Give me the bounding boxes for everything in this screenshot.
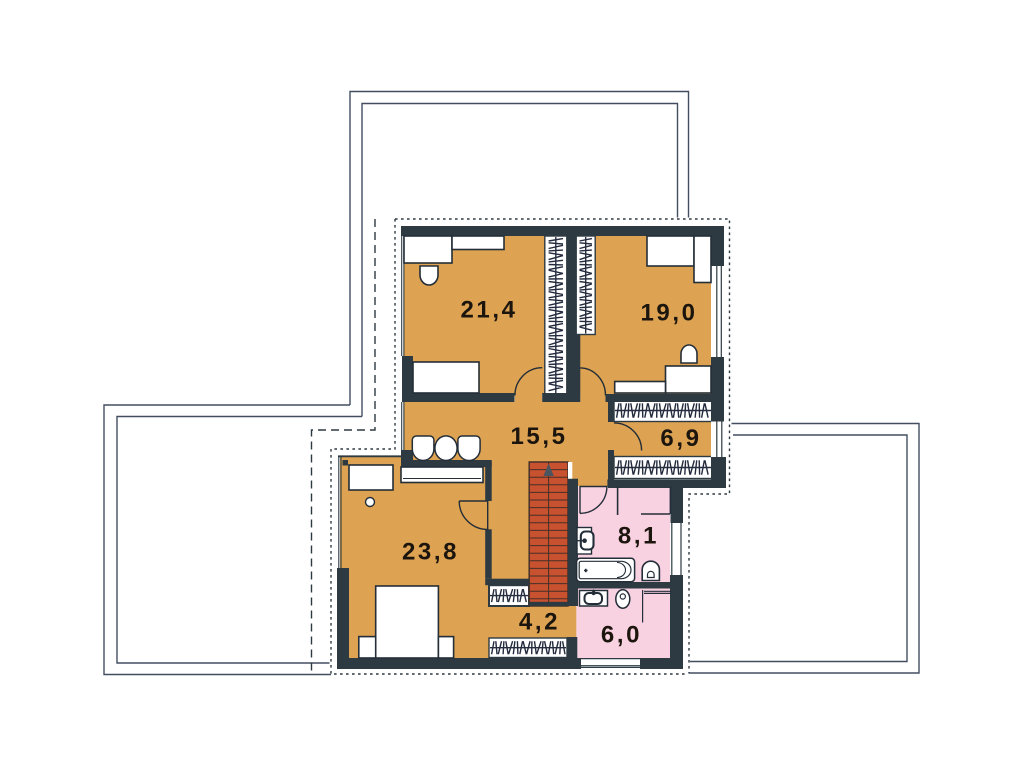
svg-text:6,0: 6,0 [601,621,642,648]
svg-text:15,5: 15,5 [510,423,567,450]
svg-text:8,1: 8,1 [618,522,659,549]
svg-text:6,9: 6,9 [660,425,701,452]
svg-text:19,0: 19,0 [640,299,697,326]
svg-text:4,2: 4,2 [519,608,560,635]
svg-text:23,8: 23,8 [402,538,459,565]
svg-text:21,4: 21,4 [460,296,517,323]
